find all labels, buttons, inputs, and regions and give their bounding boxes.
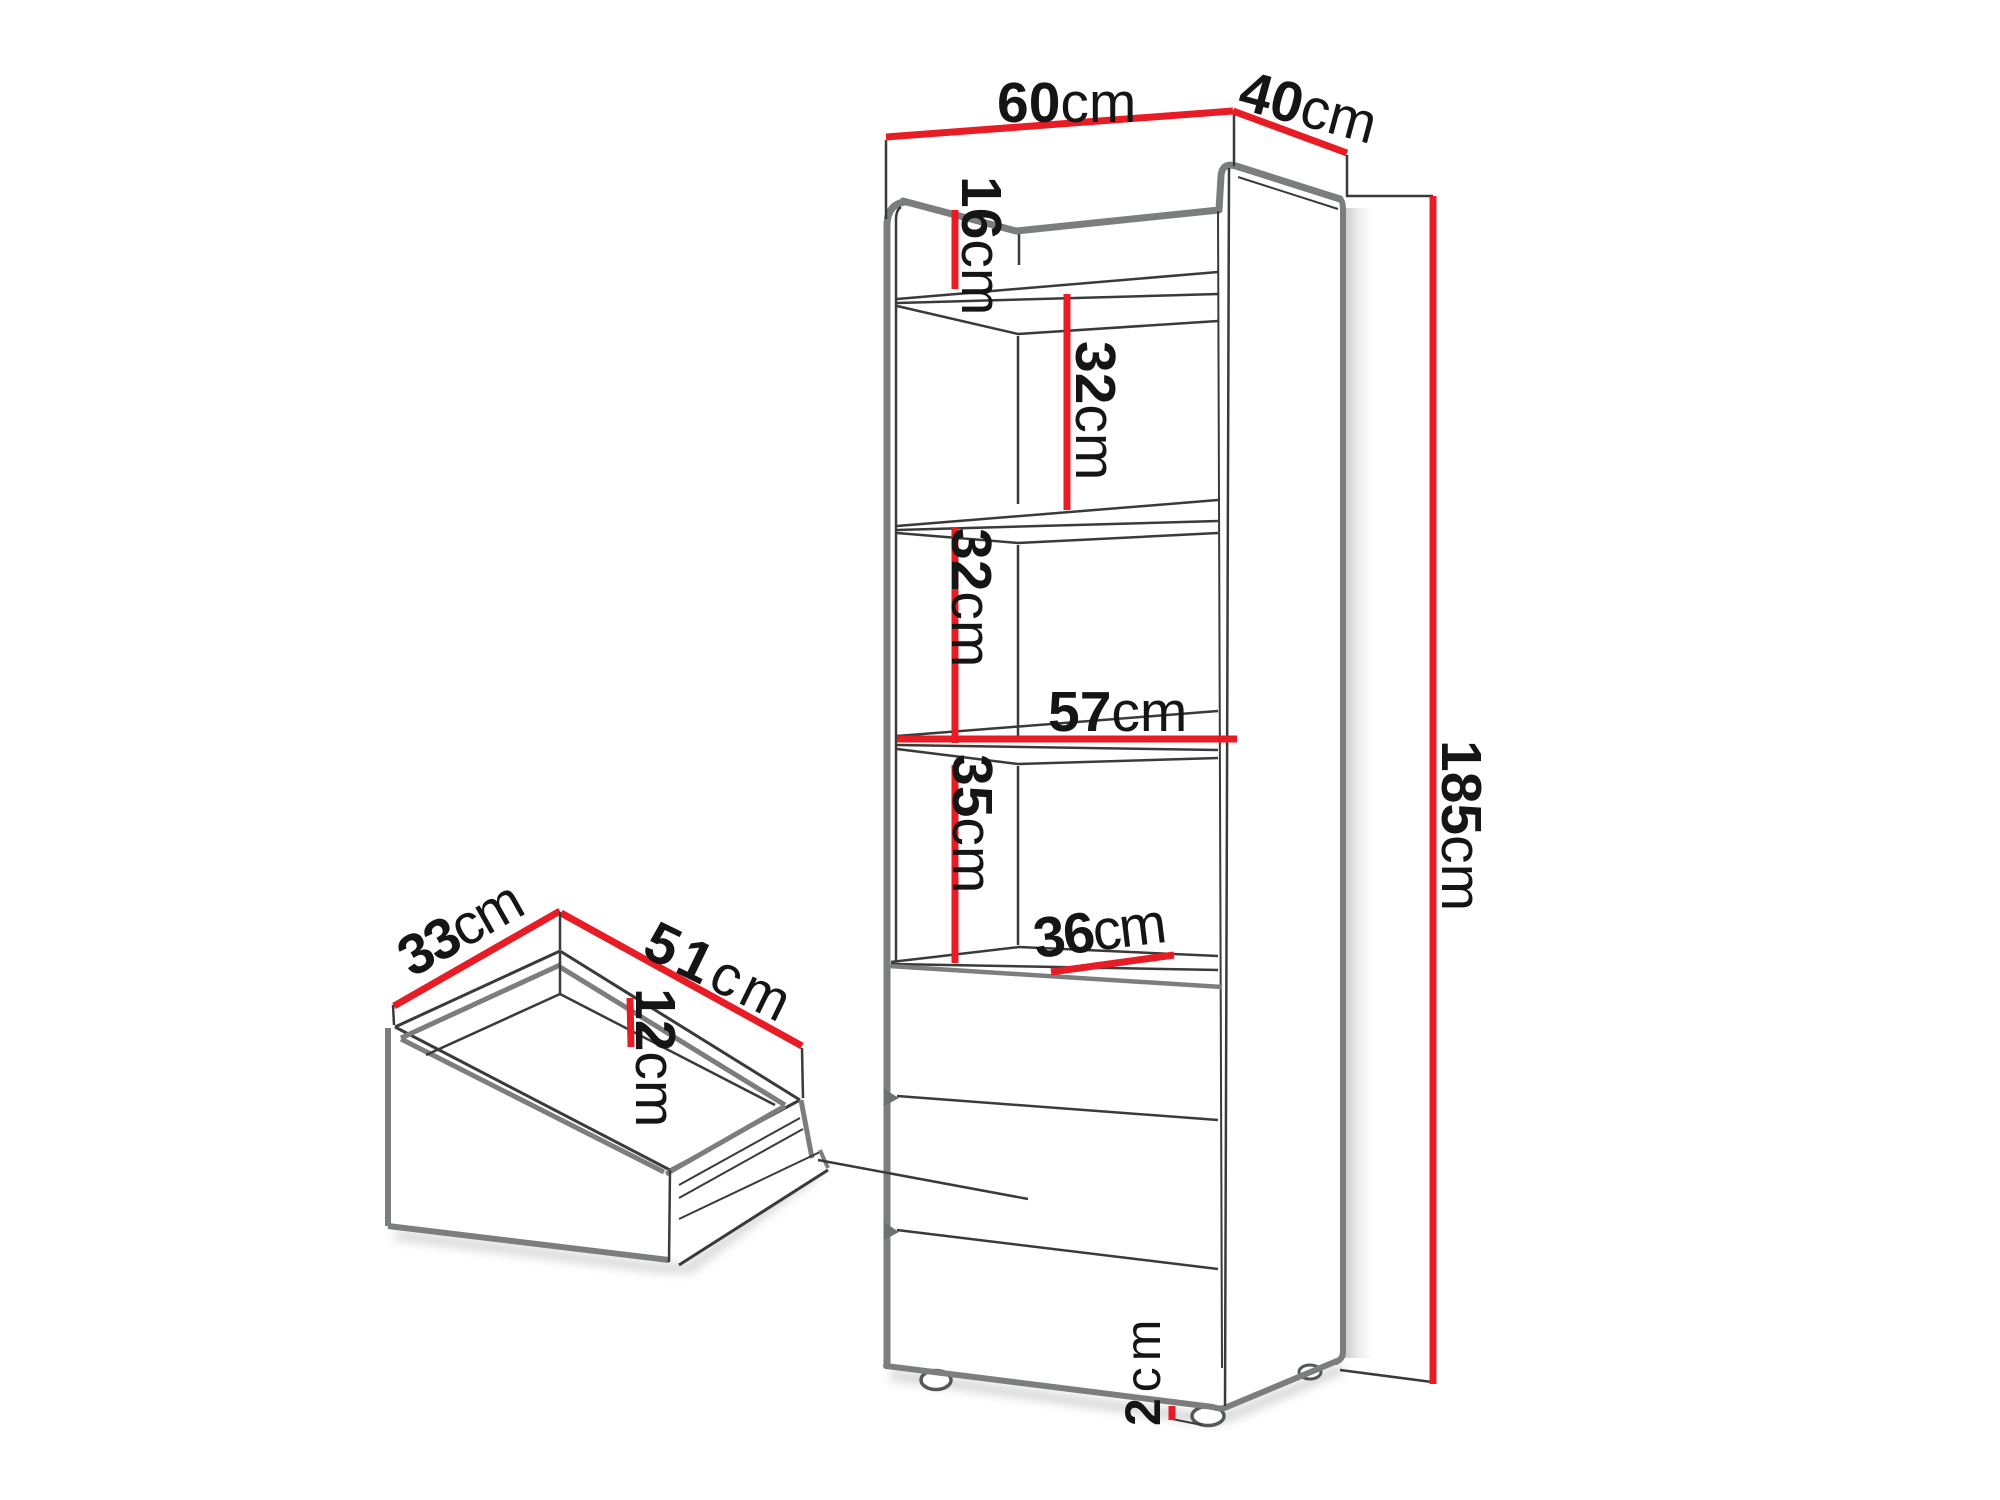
svg-text:185cm: 185cm [1429, 740, 1493, 911]
svg-text:35cm: 35cm [940, 754, 1004, 893]
svg-text:60cm: 60cm [997, 71, 1136, 135]
svg-text:16cm: 16cm [949, 176, 1013, 315]
svg-text:57cm: 57cm [1048, 680, 1187, 744]
svg-text:32cm: 32cm [1063, 341, 1127, 480]
svg-text:32cm: 32cm [939, 528, 1003, 667]
svg-text:2cm: 2cm [1115, 1314, 1171, 1426]
svg-text:12cm: 12cm [623, 988, 687, 1127]
